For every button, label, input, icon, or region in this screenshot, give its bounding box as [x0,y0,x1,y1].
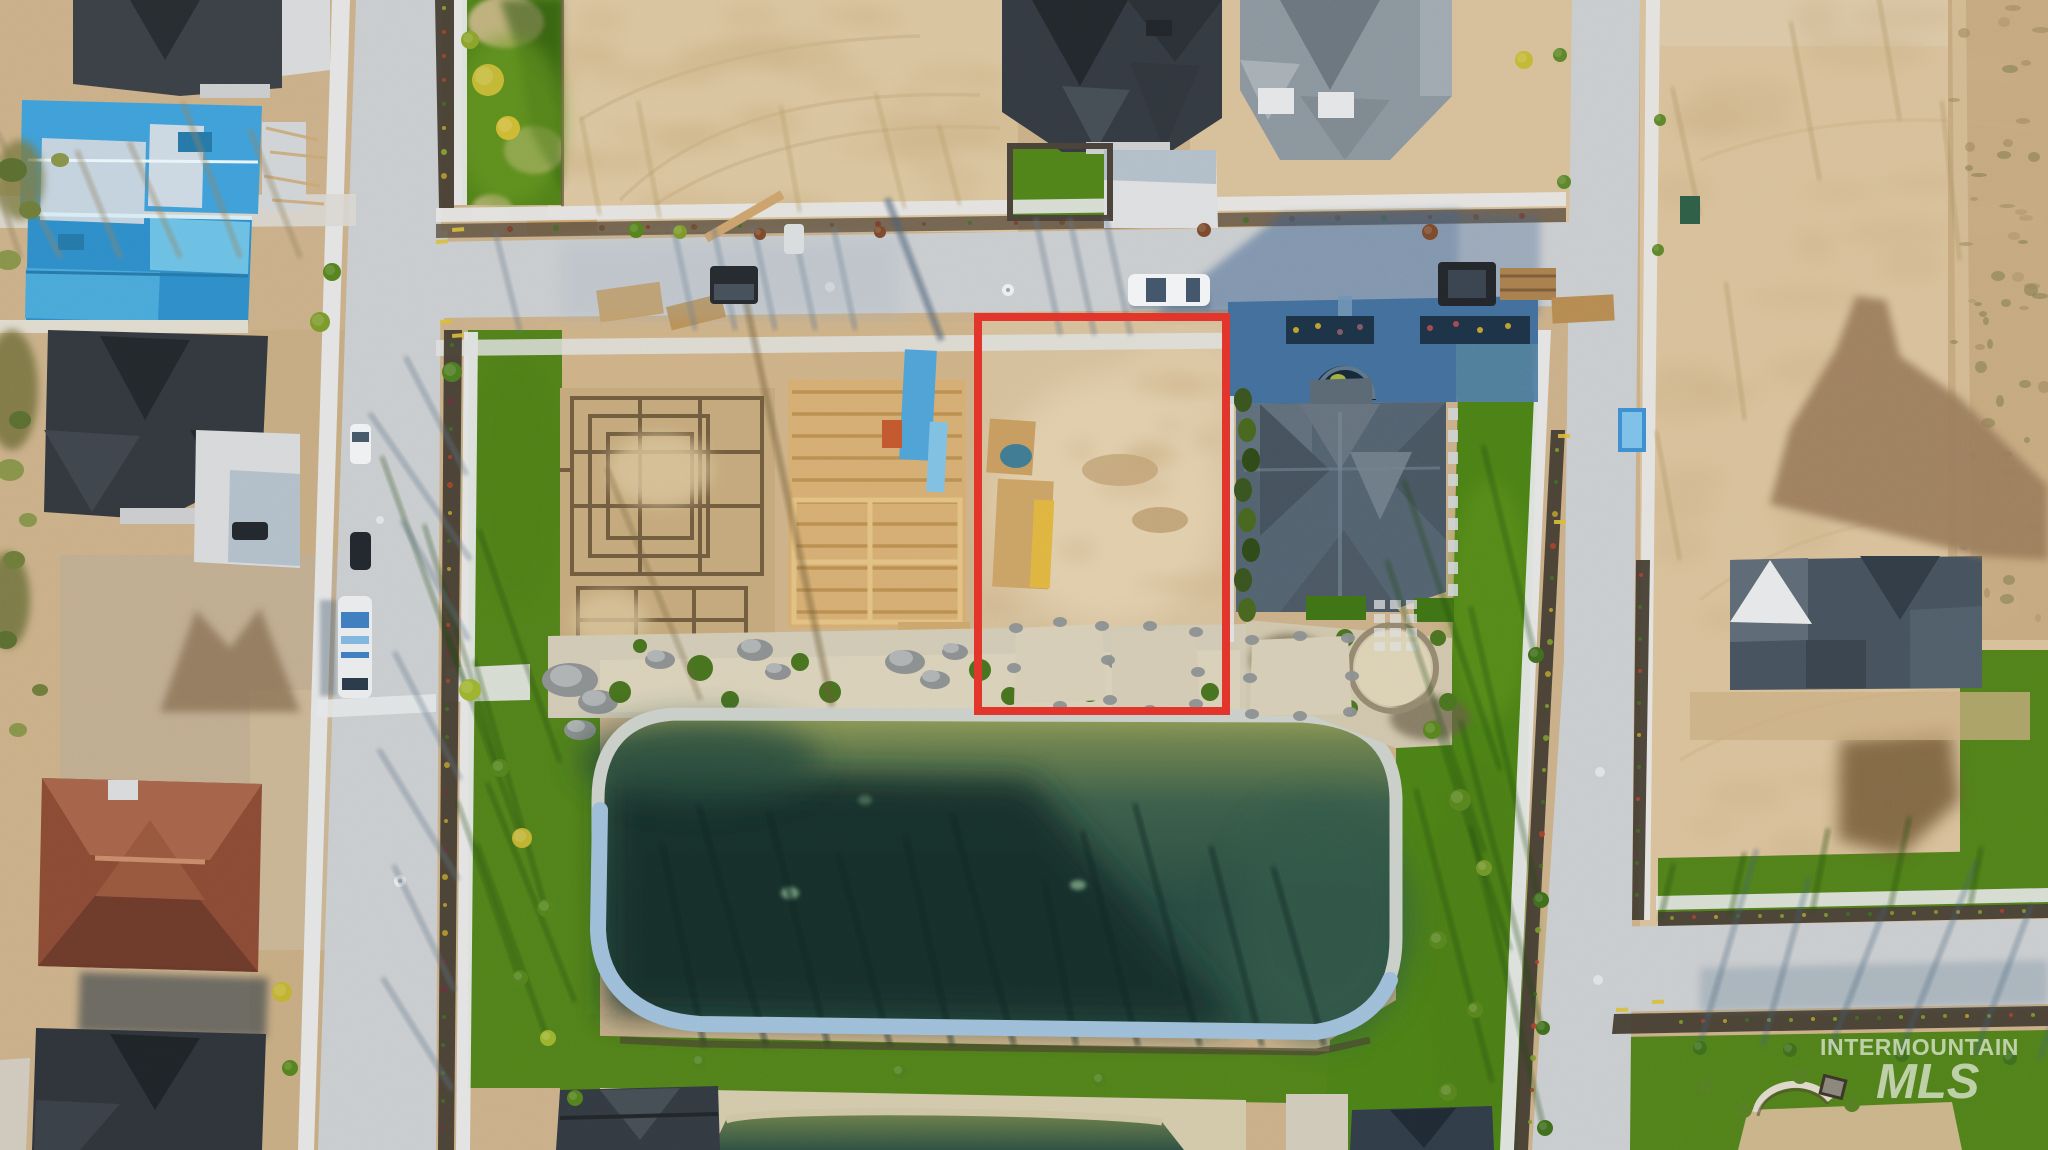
svg-text:MLS: MLS [1876,1055,1980,1109]
